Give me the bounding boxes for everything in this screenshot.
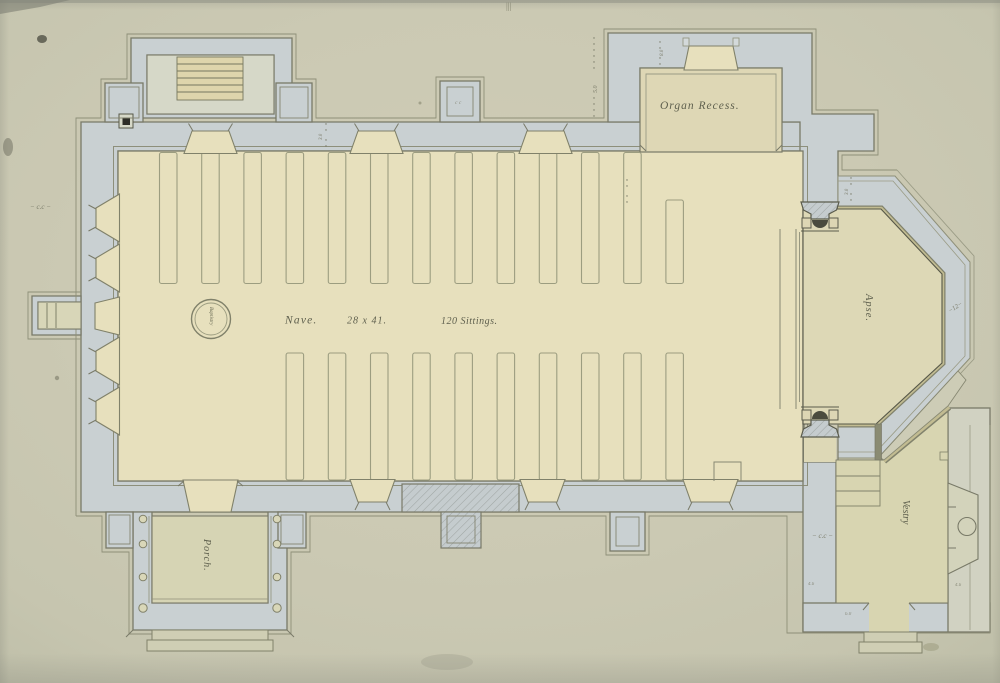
- svg-text:|||: |||: [506, 1, 512, 11]
- svg-text:Nave.: Nave.: [284, 315, 318, 327]
- svg-text:4.6: 4.6: [808, 582, 815, 587]
- svg-text:c c: c c: [455, 100, 462, 106]
- svg-text:Organ Recess.: Organ Recess.: [660, 100, 740, 112]
- svg-text:Vestry: Vestry: [900, 500, 911, 525]
- svg-text:Apse.: Apse.: [863, 293, 874, 322]
- svg-text:120 Sittings.: 120 Sittings.: [441, 316, 498, 327]
- svg-text:− c.c −: − c.c −: [812, 532, 833, 540]
- svg-text:Baptistry: Baptistry: [208, 307, 213, 326]
- svg-text:8.0: 8.0: [660, 49, 665, 56]
- svg-text:5.0: 5.0: [593, 86, 599, 94]
- svg-text:6.0: 6.0: [845, 612, 852, 617]
- svg-text:− c.c −: − c.c −: [30, 203, 51, 211]
- svg-text:4.6: 4.6: [955, 583, 962, 588]
- svg-text:28 x 41.: 28 x 41.: [347, 316, 387, 327]
- svg-text:3.0: 3.0: [319, 133, 324, 140]
- svg-text:Porch.: Porch.: [201, 538, 212, 572]
- svg-text:3.0: 3.0: [845, 188, 850, 195]
